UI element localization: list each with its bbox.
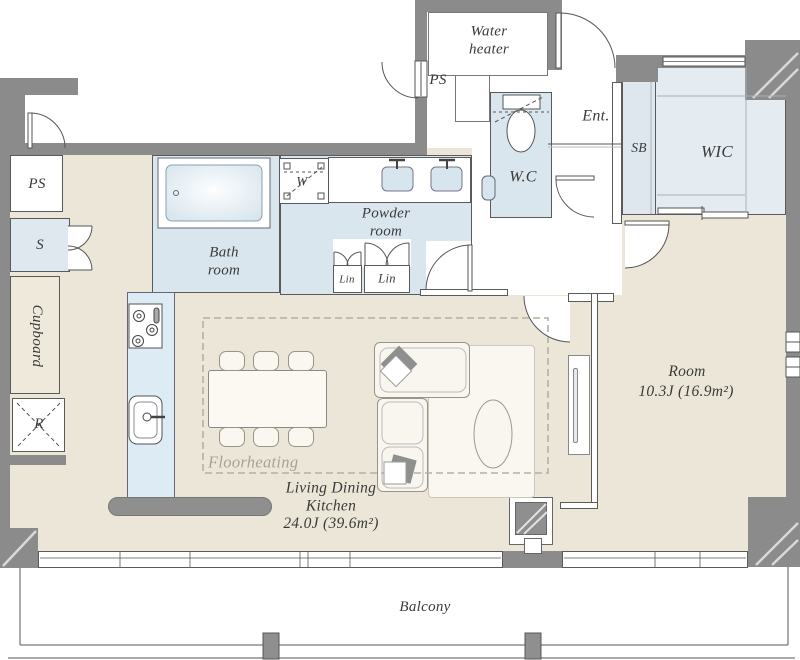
label-ent: Ent. — [582, 108, 609, 127]
lin-door-area — [333, 239, 411, 267]
wall-top — [10, 143, 420, 155]
entrance-door-swing — [560, 13, 615, 68]
wc-floor — [490, 92, 552, 218]
powder-door-area — [426, 241, 471, 294]
dining-chair — [288, 351, 314, 371]
label-ldk-area: 24.0J (39.6m²) — [283, 515, 378, 533]
bedroom-window — [562, 551, 748, 568]
tv-board — [568, 355, 590, 455]
pillar-stem — [524, 538, 542, 554]
pillar — [515, 502, 547, 535]
water-heater-niche — [455, 76, 490, 122]
partition-niche-cap — [560, 502, 598, 509]
label-ps-top: PS — [429, 72, 446, 90]
label-bath-room: Bath room — [208, 244, 240, 279]
label-fridge: R — [34, 416, 43, 434]
dining-chair — [253, 351, 279, 371]
label-water-heater: Water heater — [469, 23, 509, 58]
tv — [573, 368, 578, 443]
label-ps-left: PS — [28, 176, 45, 194]
label-powder-room: Powder room — [362, 205, 410, 240]
wall-closet-end — [8, 455, 66, 465]
wall-topleft-stub — [10, 78, 78, 95]
dining-chair — [219, 427, 245, 447]
wall-corner-topright — [745, 40, 800, 100]
kitchen-counter — [127, 292, 175, 502]
vanity-counter — [328, 157, 471, 203]
dining-table — [208, 370, 327, 428]
ldk-window — [38, 551, 503, 568]
label-cupboard: Cupboard — [27, 305, 45, 368]
wall-waterheater-right — [548, 12, 562, 70]
wall-waterheater-top — [427, 0, 562, 12]
label-room-name: Room — [668, 363, 705, 381]
wall-ps-column-upper — [415, 0, 427, 62]
wall-corner-bottomright — [748, 497, 800, 567]
partition-ldk-bedroom — [591, 293, 598, 508]
label-wic: WIC — [701, 142, 733, 162]
label-washer: W — [296, 173, 307, 188]
wall-corner-bottomleft — [0, 528, 38, 568]
label-ldk-name: Living Dining Kitchen — [286, 480, 376, 517]
dining-chair — [219, 351, 245, 371]
sofa-seat-top — [374, 342, 470, 398]
label-s-closet: S — [36, 237, 44, 255]
floor-plan: Water heater PS Ent. SB WIC W.C W Powder… — [0, 0, 800, 660]
wall-left-outer — [0, 78, 10, 536]
label-balcony: Balcony — [399, 599, 450, 617]
label-room-area: 10.3J (16.9m²) — [638, 383, 733, 401]
label-floorheating: Floorheating — [208, 452, 298, 471]
partition-ldk-door-left — [420, 289, 508, 296]
wall-ps-column-lower — [415, 96, 427, 155]
partition-hall-east — [612, 82, 622, 224]
dining-chair — [253, 427, 279, 447]
low-bench — [108, 497, 272, 516]
label-wc: W.C — [509, 169, 536, 188]
label-sb: SB — [631, 140, 647, 156]
wall-entrance-block — [616, 55, 658, 82]
dining-chair — [288, 427, 314, 447]
label-lin1: Lin — [339, 274, 355, 287]
label-lin2: Lin — [378, 272, 396, 287]
ps-door-swing — [382, 62, 418, 98]
sofa-seat-side — [377, 398, 428, 492]
